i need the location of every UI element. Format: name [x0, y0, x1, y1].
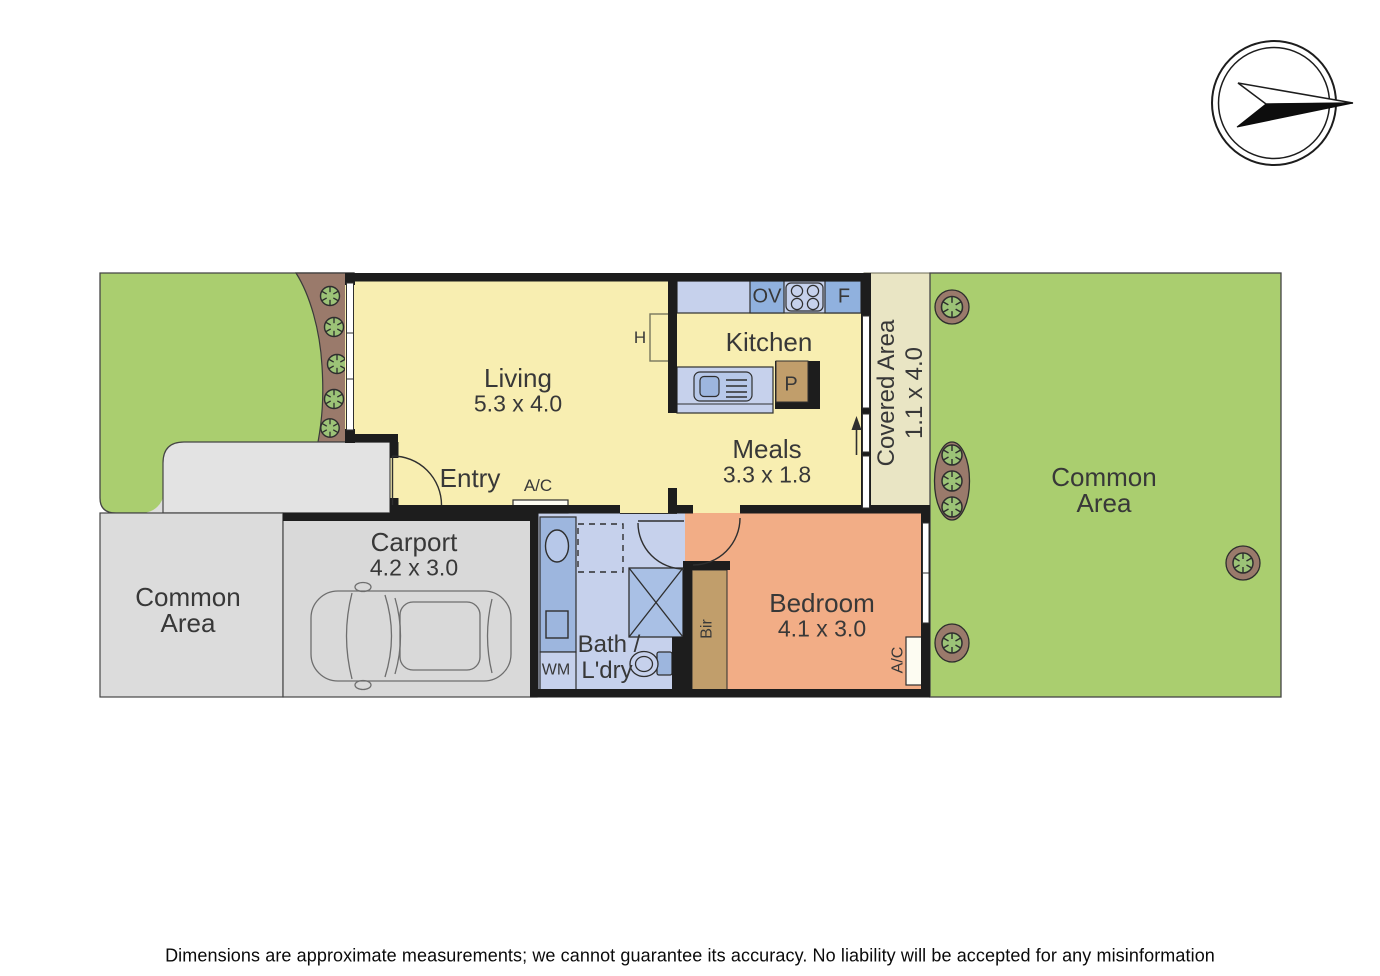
laundry-square-icon: [546, 611, 568, 638]
covered-area-label: Covered Area 1.1 x 4.0: [873, 320, 929, 467]
bath-laundry-label-line2: L'dry: [581, 657, 632, 685]
oven-label: OV: [753, 285, 782, 308]
bedroom-dims: 4.1 x 3.0: [778, 616, 866, 643]
shower-icon: [629, 568, 683, 637]
laundry-trough-icon: [546, 530, 569, 562]
living-dims: 5.3 x 4.0: [474, 391, 562, 418]
bath-laundry-label-line1: Bath /: [578, 631, 641, 659]
common-area-right-line2: Area: [1077, 488, 1132, 518]
shrub-icon: [942, 445, 962, 465]
shrub-icon: [942, 497, 962, 517]
shrub-icon: [325, 318, 344, 337]
bedroom-window: [923, 523, 930, 623]
pantry-label: P: [784, 373, 797, 396]
entry-path: [142, 442, 390, 513]
carport-dims: 4.2 x 3.0: [370, 555, 458, 582]
living-window: [347, 283, 354, 430]
floor-plan-page: Living 5.3 x 4.0 Kitchen Meals 3.3 x 1.8…: [0, 0, 1380, 976]
carport-label: Carport: [371, 527, 458, 557]
common-area-left-line2: Area: [161, 608, 216, 638]
shrub-icon: [328, 355, 347, 374]
shrub-icon: [942, 297, 963, 318]
meals-dims: 3.3 x 1.8: [723, 462, 811, 489]
floor-plan-drawing: [0, 0, 1380, 976]
kitchen-label: Kitchen: [726, 327, 813, 357]
compass-north-icon: [1212, 41, 1353, 165]
fridge-label: F: [838, 285, 850, 308]
shrub-icon: [942, 633, 962, 653]
cooktop-icon: [786, 283, 823, 311]
washing-machine-label: WM: [542, 662, 570, 681]
living-label: Living: [484, 363, 552, 393]
covered-area-dims: 1.1 x 4.0: [901, 320, 929, 467]
sink-bench: [677, 367, 773, 413]
hot-water-unit: [650, 314, 669, 361]
disclaimer-text: Dimensions are approximate measurements;…: [165, 946, 1215, 967]
built-in-robe-label: Bir: [699, 619, 718, 639]
shrub-icon: [321, 287, 340, 306]
shrub-icon: [321, 419, 339, 437]
sink-icon: [694, 372, 752, 401]
ac-bedroom-label: A/C: [890, 647, 909, 674]
shrub-icon: [942, 471, 962, 491]
shrub-icon: [325, 390, 344, 409]
entry-label: Entry: [440, 463, 501, 493]
bedroom-label: Bedroom: [769, 588, 875, 618]
meals-label: Meals: [732, 434, 801, 464]
shrub-icon: [1233, 553, 1253, 573]
ac-living-label: A/C: [524, 476, 552, 496]
covered-area-name: Covered Area: [873, 320, 901, 467]
hot-water-label: H: [634, 328, 646, 348]
